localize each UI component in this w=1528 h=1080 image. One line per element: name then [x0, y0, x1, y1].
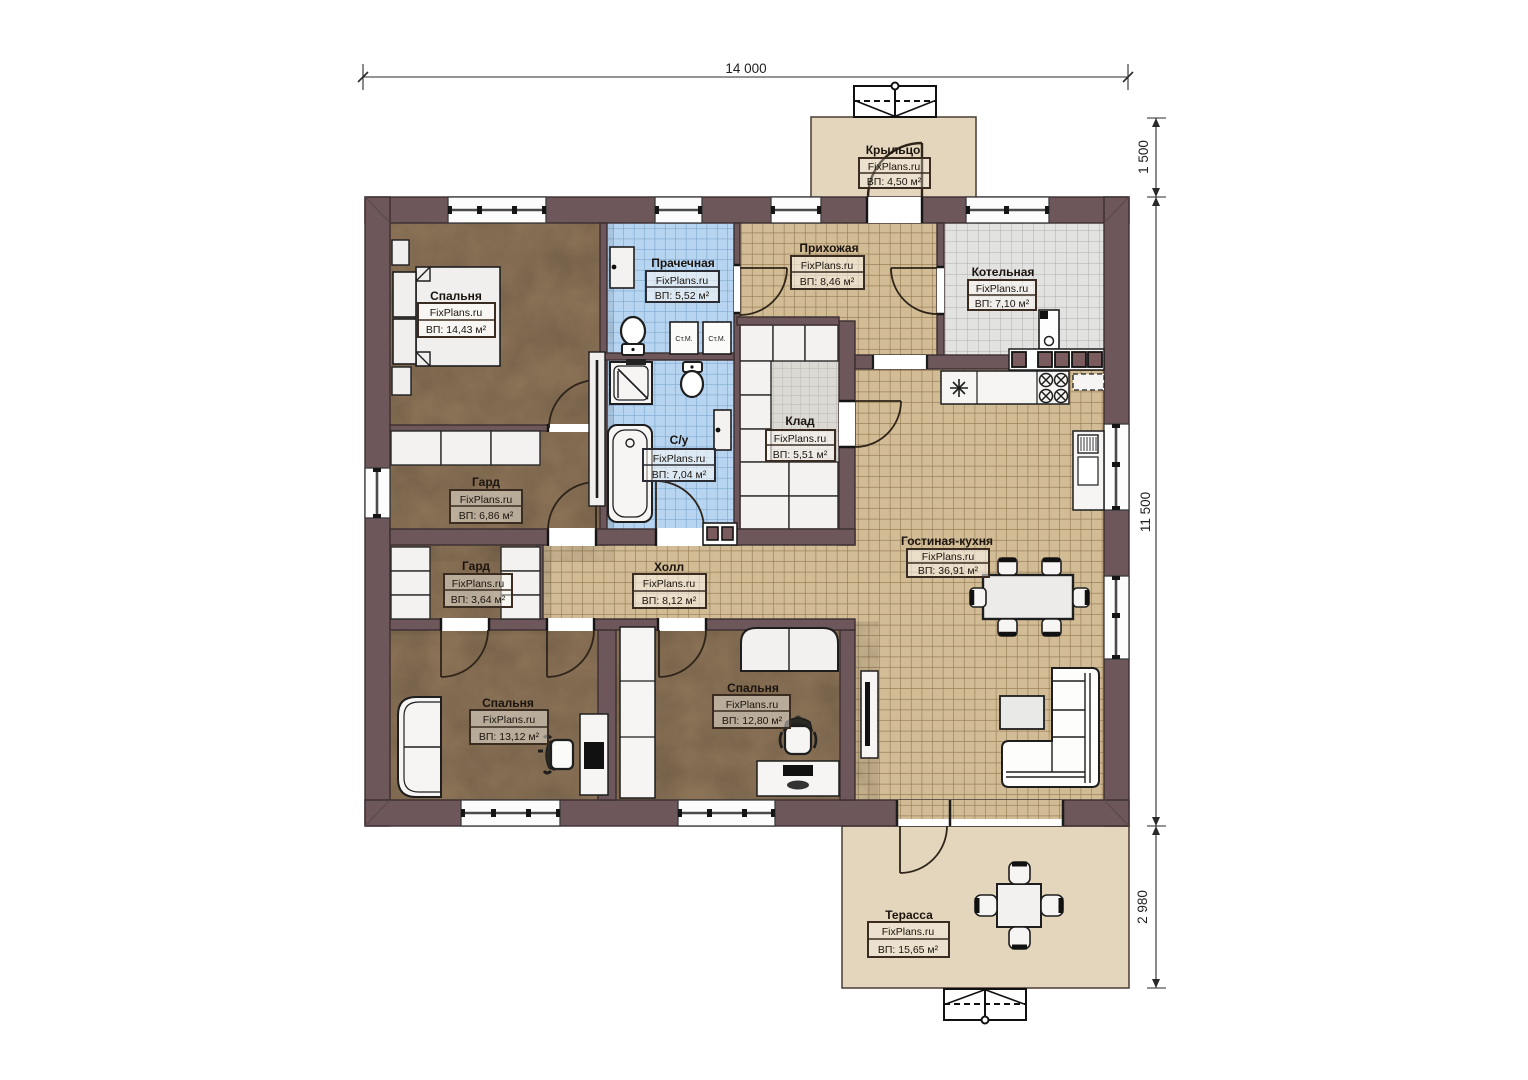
svg-text:11 500: 11 500 — [1138, 492, 1153, 532]
svg-text:ВП: 8,12 м²: ВП: 8,12 м² — [642, 595, 697, 607]
svg-text:Гард: Гард — [472, 475, 500, 489]
svg-text:FixPlans.ru: FixPlans.ru — [656, 275, 709, 287]
svg-text:ВП: 7,10 м²: ВП: 7,10 м² — [975, 298, 1030, 310]
svg-text:2 980: 2 980 — [1135, 890, 1150, 924]
svg-text:Ст.М.: Ст.М. — [708, 336, 725, 343]
svg-text:Терасса: Терасса — [885, 908, 933, 922]
svg-text:FixPlans.ru: FixPlans.ru — [922, 551, 975, 563]
svg-text:ВП: 6,86 м²: ВП: 6,86 м² — [459, 510, 514, 522]
svg-text:Холл: Холл — [654, 560, 684, 574]
svg-text:ВП: 5,51 м²: ВП: 5,51 м² — [773, 449, 828, 461]
svg-text:ВП: 13,12 м²: ВП: 13,12 м² — [479, 731, 540, 743]
svg-text:FixPlans.ru: FixPlans.ru — [653, 453, 706, 465]
svg-text:ВП: 7,04 м²: ВП: 7,04 м² — [652, 469, 707, 481]
svg-text:FixPlans.ru: FixPlans.ru — [976, 283, 1029, 295]
svg-text:FixPlans.ru: FixPlans.ru — [774, 433, 827, 445]
svg-text:FixPlans.ru: FixPlans.ru — [882, 926, 935, 938]
svg-text:Гостиная-кухня: Гостиная-кухня — [901, 534, 993, 548]
svg-text:Крыльцо: Крыльцо — [866, 143, 921, 157]
svg-text:ВП: 15,65 м²: ВП: 15,65 м² — [878, 944, 939, 956]
svg-text:FixPlans.ru: FixPlans.ru — [643, 578, 696, 590]
svg-text:Спальня: Спальня — [482, 696, 534, 710]
svg-text:ВП: 12,80 м²: ВП: 12,80 м² — [722, 715, 783, 727]
svg-text:Прихожая: Прихожая — [799, 241, 858, 255]
svg-text:ВП: 36,91 м²: ВП: 36,91 м² — [918, 565, 979, 577]
svg-text:FixPlans.ru: FixPlans.ru — [801, 260, 854, 272]
svg-text:Клад: Клад — [785, 414, 815, 428]
svg-text:14 000: 14 000 — [725, 61, 766, 76]
svg-text:FixPlans.ru: FixPlans.ru — [430, 307, 483, 319]
svg-text:FixPlans.ru: FixPlans.ru — [460, 494, 513, 506]
svg-text:С/у: С/у — [670, 433, 689, 447]
svg-text:ВП: 5,52 м²: ВП: 5,52 м² — [655, 290, 710, 302]
svg-text:Ст.М.: Ст.М. — [675, 336, 692, 343]
svg-text:ВП: 14,43 м²: ВП: 14,43 м² — [426, 324, 487, 336]
svg-text:ВП: 3,64 м²: ВП: 3,64 м² — [451, 594, 506, 606]
svg-text:FixPlans.ru: FixPlans.ru — [726, 699, 779, 711]
svg-text:FixPlans.ru: FixPlans.ru — [483, 714, 536, 726]
svg-text:1 500: 1 500 — [1136, 140, 1151, 174]
svg-text:Спальня: Спальня — [430, 289, 482, 303]
svg-text:Прачечная: Прачечная — [651, 256, 715, 270]
svg-text:ВП: 8,46 м²: ВП: 8,46 м² — [800, 276, 855, 288]
svg-text:Спальня: Спальня — [727, 681, 779, 695]
svg-text:Котельная: Котельная — [972, 265, 1035, 279]
svg-text:FixPlans.ru: FixPlans.ru — [868, 161, 921, 173]
svg-text:Гард: Гард — [462, 559, 490, 573]
svg-text:FixPlans.ru: FixPlans.ru — [452, 578, 505, 590]
svg-text:ВП: 4,50 м²: ВП: 4,50 м² — [867, 176, 922, 188]
